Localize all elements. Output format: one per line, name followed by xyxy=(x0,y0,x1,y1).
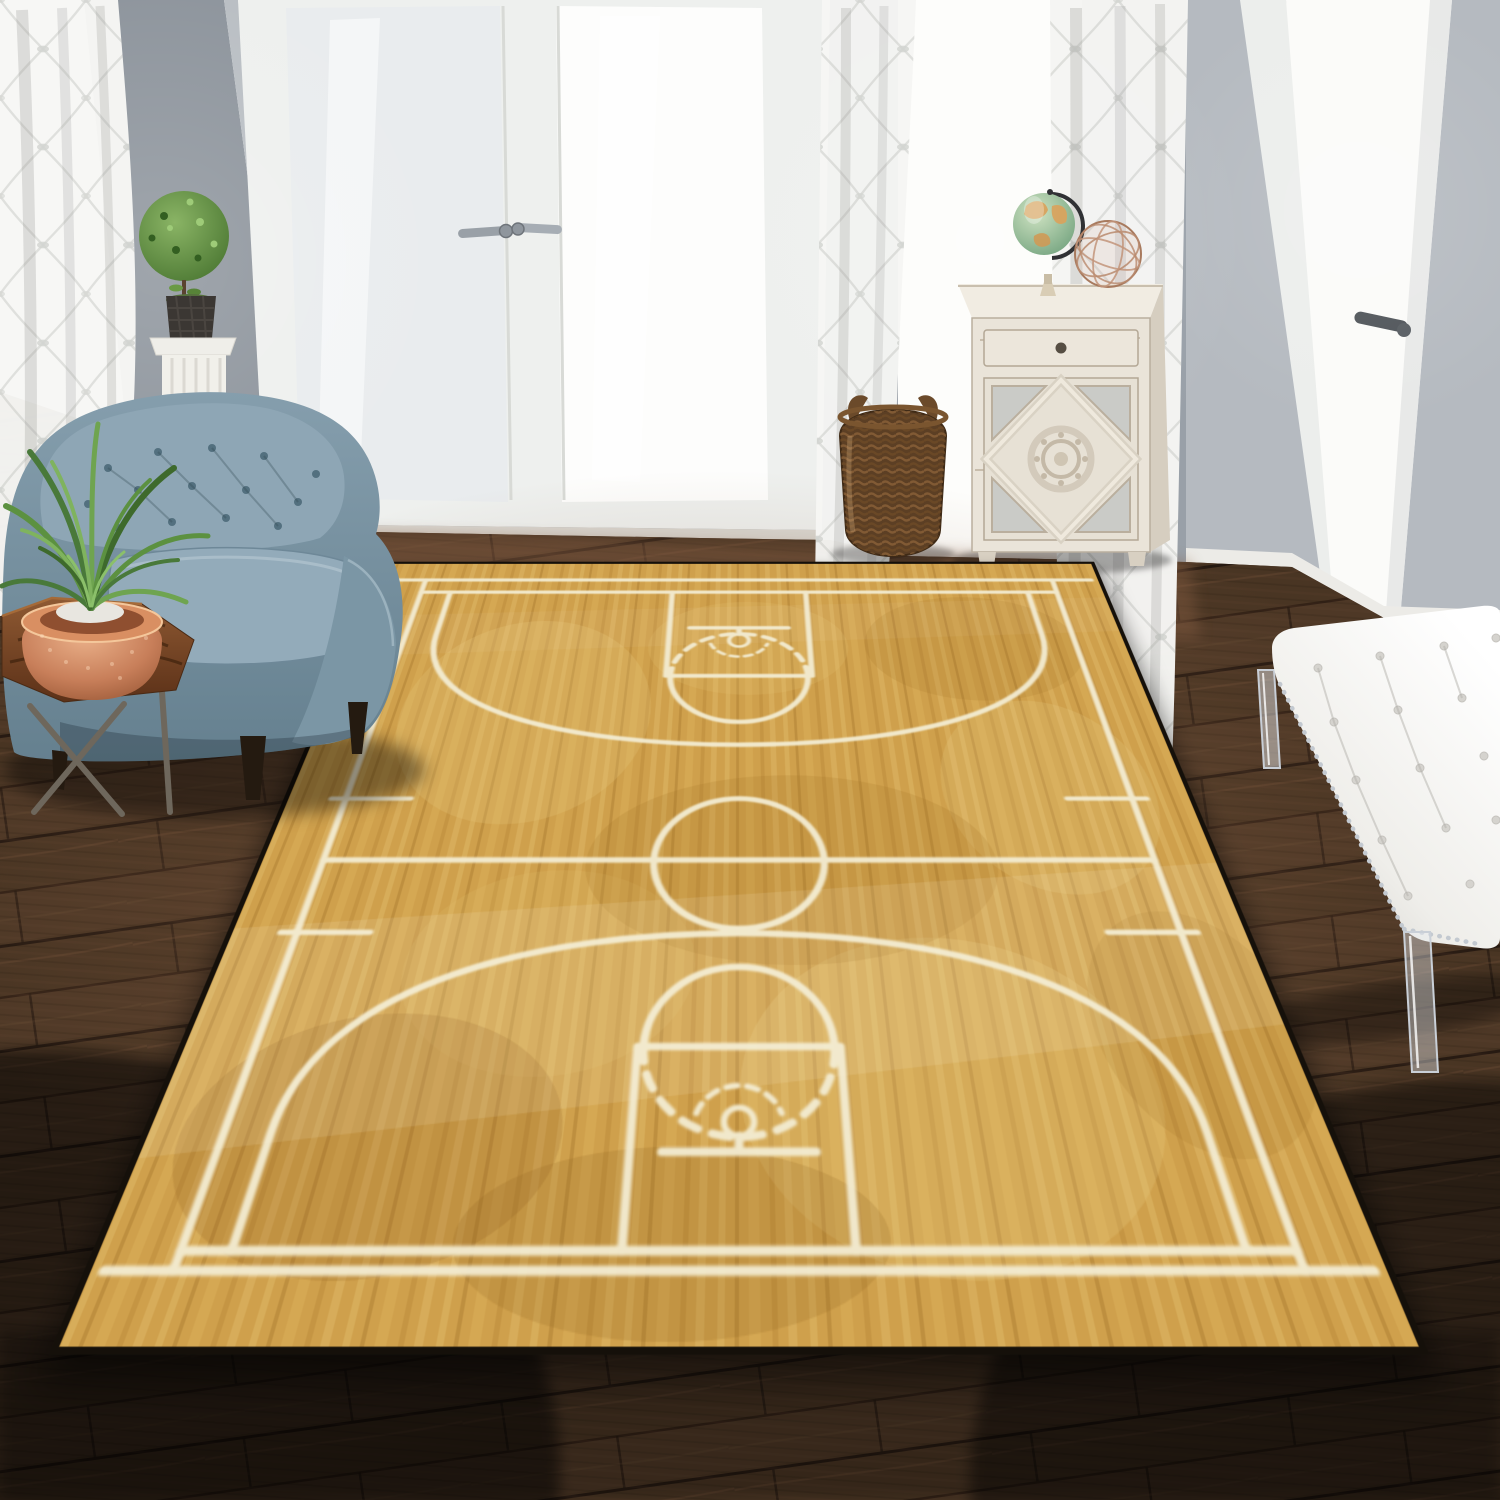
right-door-handle xyxy=(1353,311,1411,337)
bench xyxy=(1258,606,1500,1072)
mirror-panels xyxy=(992,386,1130,532)
right-wall xyxy=(1186,0,1500,622)
chair-tufted-back xyxy=(40,403,344,551)
cabinet-drawer xyxy=(984,330,1138,366)
cabinet-door xyxy=(984,378,1138,540)
basket xyxy=(840,395,946,556)
topiary-ball xyxy=(139,191,229,281)
spider-plant xyxy=(2,424,208,608)
bench-tufts xyxy=(1314,634,1500,900)
topiary-pot xyxy=(166,296,216,338)
table-top xyxy=(2,598,194,702)
white-door xyxy=(1286,0,1452,620)
bench-cushion xyxy=(1272,606,1500,949)
seat-cushion xyxy=(108,548,358,665)
curtain-left xyxy=(0,0,136,622)
side-table xyxy=(2,598,194,814)
basket-handle xyxy=(848,395,868,430)
ceramic-pot xyxy=(56,601,124,623)
door-medallion xyxy=(1031,429,1091,489)
nailhead-trim xyxy=(1280,684,1402,926)
globe xyxy=(1013,189,1083,296)
court-print xyxy=(48,562,1429,1355)
left-window xyxy=(0,0,322,548)
right-window xyxy=(898,0,1082,562)
door-threshold xyxy=(264,524,822,544)
door-handles xyxy=(458,223,562,238)
bench-leg-acrylic xyxy=(1258,670,1280,768)
cabinet xyxy=(958,284,1170,566)
table-legs xyxy=(30,692,170,814)
wire-sphere xyxy=(1068,213,1148,294)
wall-pier xyxy=(84,0,286,468)
pedestal-column xyxy=(146,338,242,464)
tuft-buttons xyxy=(84,444,320,532)
copper-bowl-planter xyxy=(22,601,162,700)
drawer-knob xyxy=(1056,343,1067,354)
living-room-photo xyxy=(0,0,1500,1500)
basket-handle xyxy=(918,395,938,430)
bench-leg-acrylic xyxy=(1404,932,1438,1072)
pedestal-topiary xyxy=(139,191,242,464)
french-doors xyxy=(238,0,830,544)
basketball-court-rug xyxy=(48,562,1429,1355)
door-trim xyxy=(1240,0,1366,600)
